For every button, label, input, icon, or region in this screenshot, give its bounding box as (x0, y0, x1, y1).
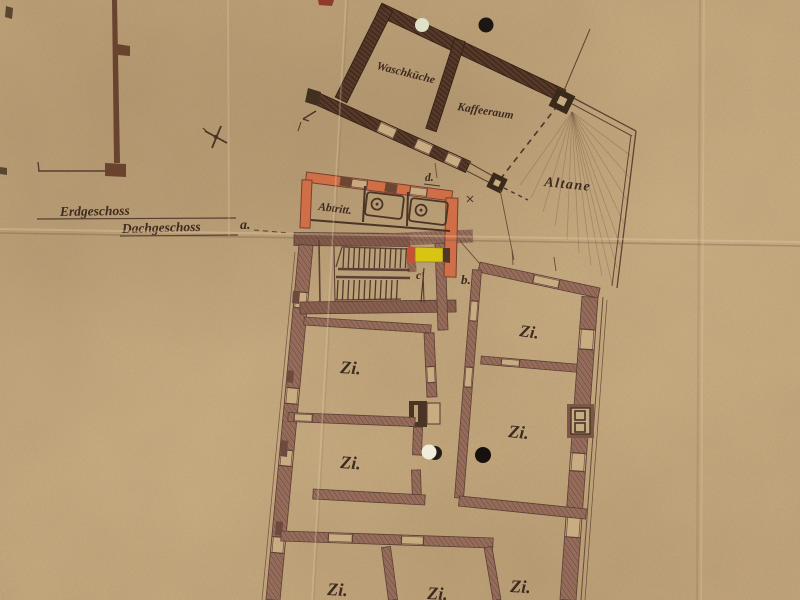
svg-text:b.: b. (461, 272, 471, 287)
svg-text:Dachgeschoss: Dachgeschoss (121, 219, 201, 236)
svg-text:d.: d. (425, 172, 434, 184)
svg-text:Erdgeschoss: Erdgeschoss (59, 203, 130, 219)
svg-text:a.: a. (240, 218, 251, 233)
svg-text:c: c (416, 268, 422, 282)
svg-text:Zi.: Zi. (326, 579, 349, 600)
svg-text:Zi.: Zi. (339, 452, 362, 473)
svg-text:Zi.: Zi. (426, 583, 449, 600)
svg-text:Zi.: Zi. (339, 357, 362, 378)
svg-text:Zi.: Zi. (507, 421, 530, 443)
svg-text:Zi.: Zi. (517, 321, 540, 343)
svg-text:Zi.: Zi. (509, 576, 532, 597)
